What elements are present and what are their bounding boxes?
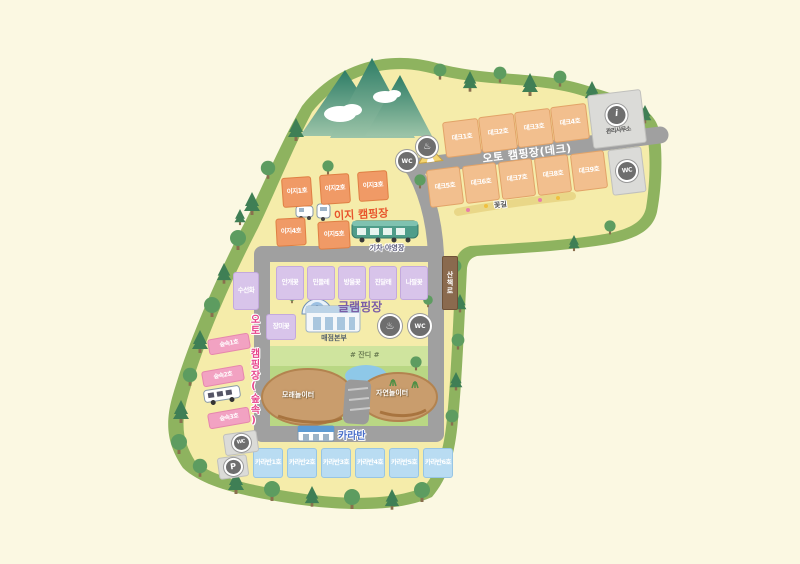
stepping-path	[342, 379, 371, 425]
shower-icon: ♨	[378, 314, 402, 338]
trail-sign: 산책로	[442, 256, 458, 310]
caravan-site-label: 카라반4호	[357, 459, 383, 466]
deck-site: 데크8호	[534, 154, 572, 196]
glamping-zone-title: 글램핑장	[338, 298, 382, 315]
caravan-site-label: 카라반6호	[425, 459, 451, 466]
deck-site-label: 데크3호	[523, 123, 544, 133]
easy-site: 이지1호	[281, 176, 313, 208]
glamping-site: 민들레	[307, 266, 335, 300]
caravan-site-label: 카라반2호	[289, 459, 315, 466]
deck-site-label: 데크5호	[434, 182, 455, 192]
glamping-site: 방울꽃	[338, 266, 366, 300]
glamping-site: 진달래	[369, 266, 397, 300]
caravan-zone-title: 카라반	[338, 427, 366, 442]
glamping-site-label: 진달래	[375, 279, 391, 286]
lawn-label: # 잔디 #	[350, 350, 380, 360]
easy-site: 이지4호	[275, 217, 306, 247]
restroom-building: WC	[607, 146, 646, 196]
right-playground-label: 자연놀이터	[376, 388, 408, 398]
deck-site-label: 데크6호	[470, 178, 491, 188]
store-label: 매점본부	[312, 333, 356, 343]
caravan-site: 카라반3호	[321, 448, 351, 478]
info-icon: i	[604, 102, 629, 127]
caravan-site: 카라반2호	[287, 448, 317, 478]
campground-map: 데크1호 데크2호 데크3호 데크4호 i 관리사무소 오토 캠핑장(데크) 데…	[0, 0, 800, 564]
deck-site-label: 데크2호	[487, 128, 508, 138]
deck-site-label: 데크8호	[542, 170, 563, 180]
easy-site: 이지2호	[319, 173, 351, 205]
easy-site-label: 이지4호	[281, 228, 302, 236]
deck-site: 데크6호	[462, 162, 500, 204]
caravan-site: 카라반5호	[389, 448, 419, 478]
glamping-site: 안개꽃	[276, 266, 304, 300]
restroom-icon: WC	[230, 433, 251, 453]
caravan-site: 카라반4호	[355, 448, 385, 478]
deck-site-label: 데크1호	[451, 133, 472, 143]
glamping-site-label: 방울꽃	[344, 279, 360, 286]
caravan-building-icon	[298, 426, 334, 441]
parking-icon: P	[222, 457, 243, 477]
forest-site-label: 숲속2호	[213, 371, 233, 381]
easy-site-label: 이지3호	[363, 182, 384, 191]
glamping-site: 나팔꽃	[400, 266, 428, 300]
glamping-site-label: 안개꽃	[282, 279, 298, 286]
restroom-icon: WC	[408, 314, 432, 338]
easy-site: 이지5호	[317, 220, 350, 250]
shower-icon: ♨	[416, 136, 438, 158]
flower-path-label: 꽃길	[494, 199, 508, 210]
deck-site-label: 데크9호	[578, 166, 599, 176]
glamping-site-label: 민들레	[313, 279, 329, 286]
caravan-site-label: 카라반1호	[255, 459, 281, 466]
easy-site: 이지3호	[357, 170, 389, 202]
glamping-site-label: 장미꽃	[273, 323, 289, 330]
forest-site-label: 숲속3호	[219, 413, 239, 423]
deck-site-label: 데크7호	[506, 174, 527, 184]
restroom-building: WC	[223, 430, 260, 457]
deck-site: 데크5호	[426, 166, 464, 208]
glamping-site: 수선화	[233, 272, 259, 310]
caravan-site-label: 카라반5호	[391, 459, 417, 466]
caravan-site: 카라반1호	[253, 448, 283, 478]
deck-site-label: 데크4호	[559, 118, 580, 128]
easy-site-label: 이지1호	[287, 188, 308, 197]
parking-area: P	[217, 454, 250, 480]
left-playground-label: 모래놀이터	[282, 390, 314, 400]
forest-site-label: 숲속1호	[219, 339, 239, 349]
restroom-icon: WC	[615, 159, 640, 184]
glamping-site-label: 수선화	[238, 287, 254, 294]
glamping-site: 장미꽃	[266, 314, 296, 340]
caravan-site: 카라반6호	[423, 448, 453, 478]
train-site-label: 기차 야영장	[352, 243, 422, 253]
deck-site: 데크7호	[498, 158, 536, 200]
easy-site-label: 이지5호	[324, 231, 345, 239]
glamping-site-label: 나팔꽃	[406, 279, 422, 286]
restroom-icon: WC	[396, 150, 418, 172]
easy-site-label: 이지2호	[325, 185, 346, 194]
deck-site: 데크9호	[570, 150, 608, 192]
caravan-site-label: 카라반3호	[323, 459, 349, 466]
